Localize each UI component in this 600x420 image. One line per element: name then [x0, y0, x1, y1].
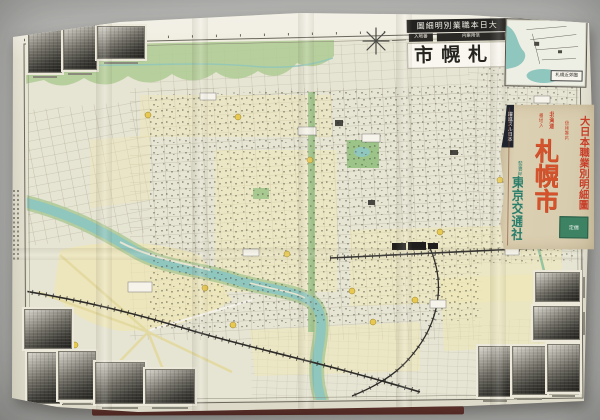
photo-right-edge-2 — [533, 306, 580, 340]
inset-map-label: 札幌近郊圖 — [551, 70, 583, 82]
cover-seller-label: 發賣所 — [516, 161, 522, 176]
photo-top-left-1 — [28, 25, 62, 73]
map-subtitle-left: 番地入 — [409, 33, 433, 41]
map-cover-packet: 大日本職業別明細圖 信用案内 北海道 番地入 札幌市 躍進スル日本 發賣所 東京… — [498, 103, 596, 250]
photo-bottom-right-3 — [547, 344, 580, 392]
photo-bottom-left-1 — [27, 352, 60, 404]
map-series-banner: 大日本職業別明細圖 — [407, 18, 508, 33]
photo-bottom-left-4 — [145, 369, 195, 404]
photo-church-building — [24, 309, 72, 349]
map-subtitle-right: 信用案内 — [437, 32, 505, 41]
photo-top-left-3 — [97, 26, 145, 59]
map-title-block: 大日本職業別明細圖 番地入 信用案内 札幌市 — [407, 18, 509, 68]
cover-series-subtitle: 信用案内 — [563, 120, 569, 212]
cover-price-stamp: 定價 — [559, 216, 588, 238]
photo-clock-tower — [478, 346, 512, 397]
photo-bottom-left-3 — [95, 362, 145, 404]
photo-bottom-left-2 — [58, 351, 96, 400]
photo-shrine-torii — [63, 25, 97, 70]
cover-edition-note: 番地入 — [538, 113, 543, 135]
cover-series-title: 大日本職業別明細圖 — [578, 115, 590, 219]
cover-city-title: 札幌市 — [532, 138, 558, 236]
cover-region-label: 北海道 — [548, 111, 554, 135]
map-city-title: 札幌市 — [407, 41, 510, 69]
inset-vicinity-map: 札幌近郊圖 — [504, 18, 587, 87]
margin-notes-column — [13, 190, 19, 260]
photographed-map-scene: 大日本職業別明細圖 番地入 信用案内 札幌市 札幌近郊圖 — [0, 0, 600, 420]
photo-right-edge-1 — [535, 272, 580, 302]
cover-publisher: 東京交通社 — [509, 175, 523, 245]
photo-bottom-right-2 — [512, 346, 547, 395]
compass-rose-icon — [356, 25, 408, 59]
